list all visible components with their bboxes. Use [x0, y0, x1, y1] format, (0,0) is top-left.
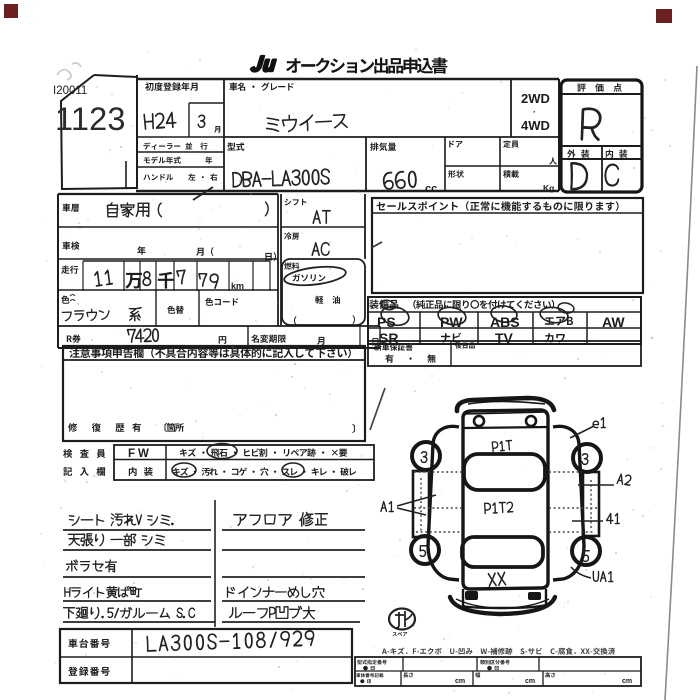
svg-text:SR: SR	[379, 330, 398, 346]
svg-text:cm: cm	[525, 678, 535, 685]
svg-text:AW: AW	[602, 314, 625, 330]
svg-text:1123: 1123	[55, 101, 126, 137]
svg-text:cc: cc	[425, 183, 437, 195]
svg-text:I20011: I20011	[53, 85, 87, 97]
svg-text:·: ·	[533, 107, 536, 117]
svg-text:cm: cm	[455, 678, 465, 685]
svg-text:FW: FW	[128, 448, 152, 460]
svg-text:TV: TV	[495, 330, 514, 346]
svg-text:2WD: 2WD	[521, 91, 550, 106]
svg-text:cm: cm	[622, 678, 632, 685]
svg-text:4WD: 4WD	[521, 118, 550, 133]
svg-text:Kg: Kg	[543, 183, 554, 193]
